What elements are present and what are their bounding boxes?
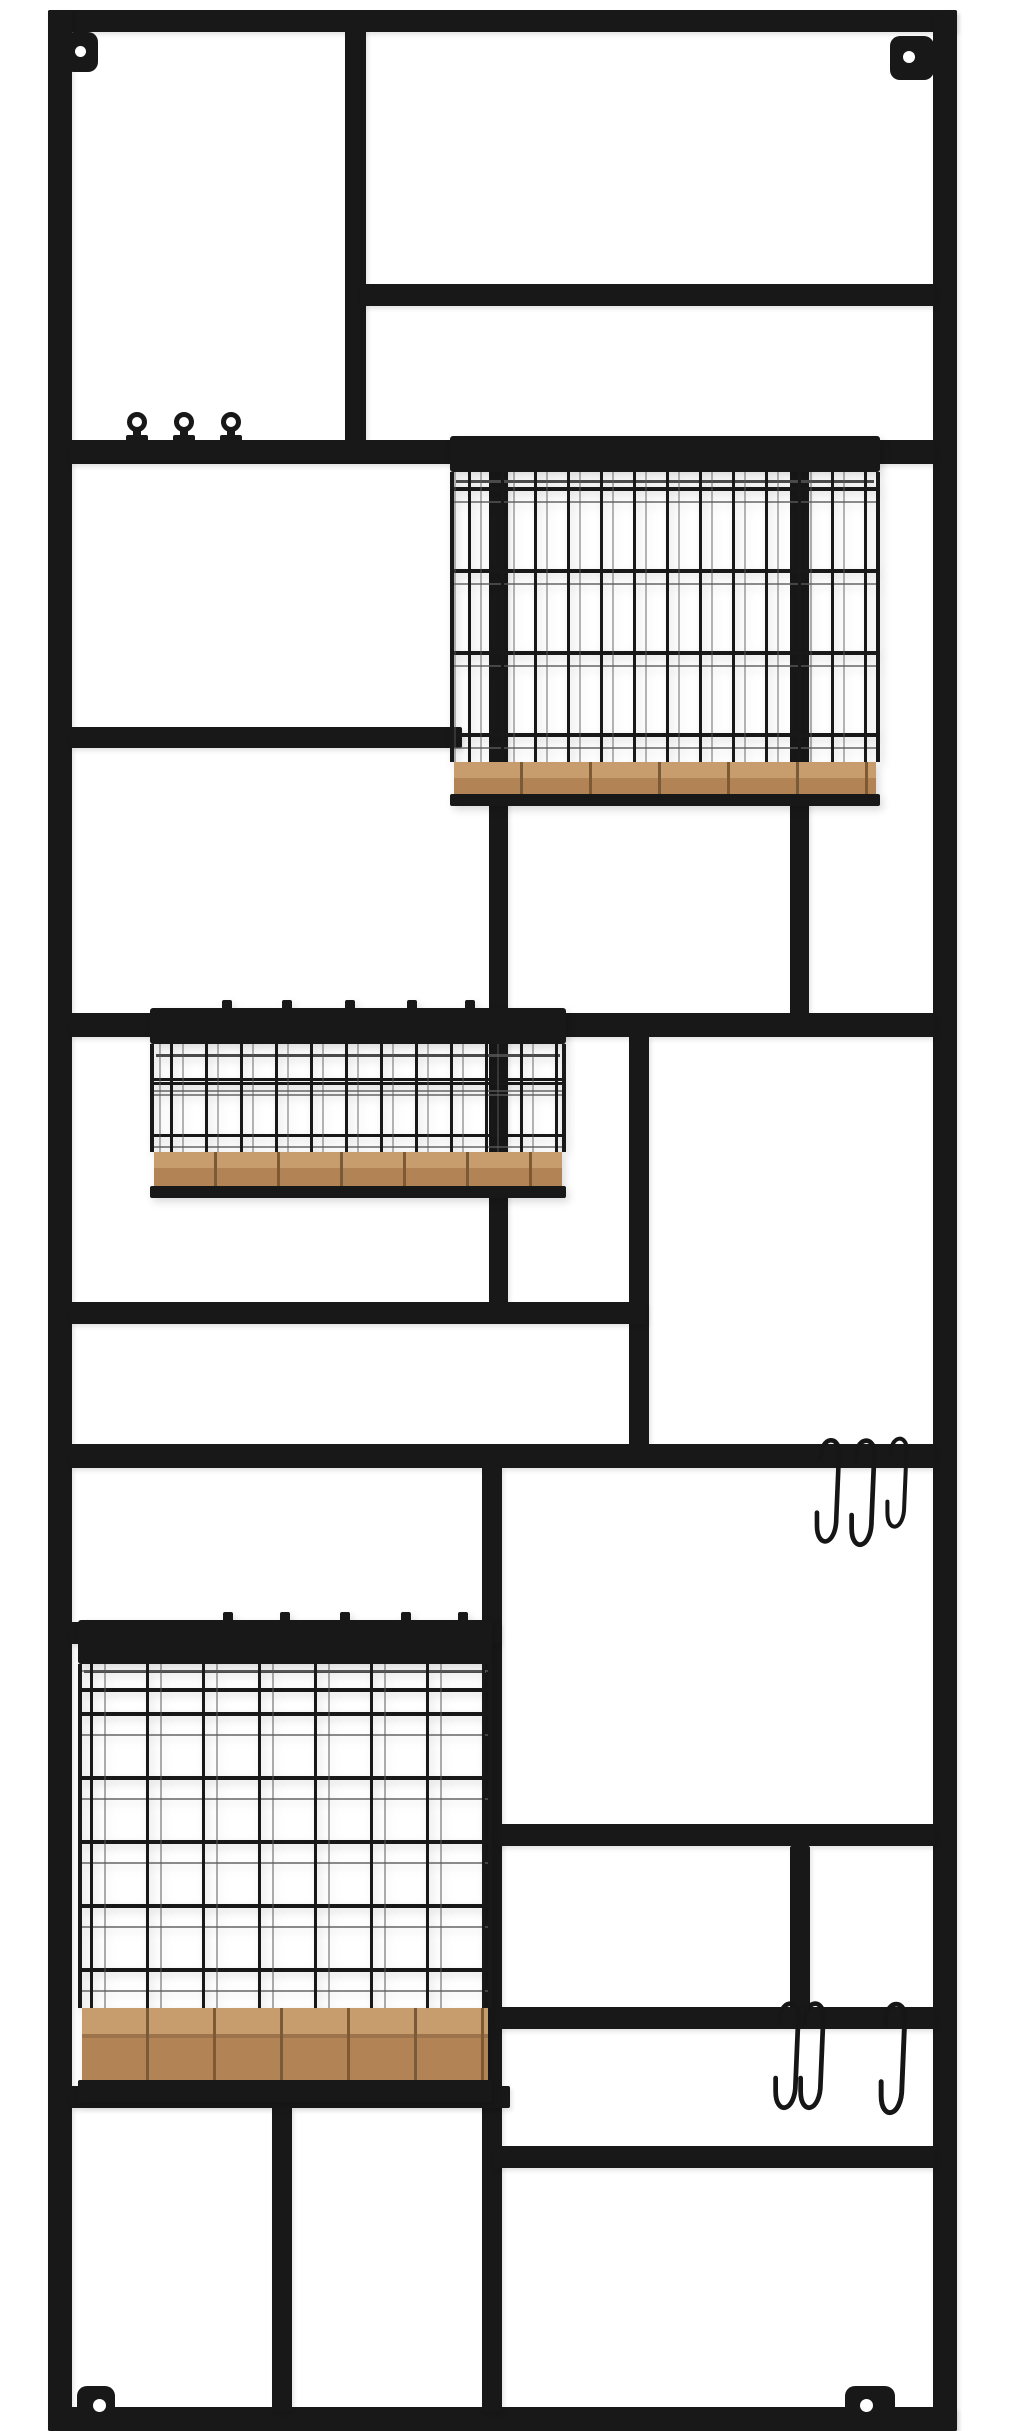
basket-wire-mesh <box>450 472 880 762</box>
divider-horizontal-topright <box>360 284 935 306</box>
knob-ring-icon <box>174 412 194 432</box>
divider-vertical-mid <box>629 1035 649 1456</box>
basket-wood-base-front <box>154 1168 562 1188</box>
divider-vertical-bottom-left <box>272 2106 292 2411</box>
divider-vertical-top <box>345 28 366 452</box>
frame-rail-bottom <box>48 2407 957 2431</box>
s-hook-icon <box>843 1428 883 1570</box>
s-hook-icon <box>791 1991 833 2133</box>
divider-horizontal-left-short <box>70 727 462 748</box>
screw-hole <box>93 2399 106 2412</box>
frame-rail-top <box>48 10 957 32</box>
screw-hole <box>903 51 915 63</box>
knob-base <box>173 435 195 442</box>
wire-basket-middle-left <box>150 1008 566 1200</box>
frame-rail-left <box>48 10 72 2431</box>
basket-bottom-rail <box>150 1186 566 1198</box>
divider-vertical-right-small <box>790 1846 810 2011</box>
product-photo-wall-rack <box>0 0 1024 2431</box>
divider-horizontal-shook-row <box>70 1444 935 1468</box>
s-hook-icon <box>878 1428 916 1548</box>
screw-hole <box>75 46 86 57</box>
basket-top-rail <box>150 1008 566 1044</box>
mount-tab-bottom-left <box>77 2386 115 2426</box>
basket-wood-base-top <box>154 1152 562 1168</box>
basket-bottom-rail <box>78 2080 492 2102</box>
divider-horizontal-right-3 <box>494 2146 935 2168</box>
divider-horizontal-right-1 <box>494 1824 935 1846</box>
knob-ring-icon <box>127 412 147 432</box>
s-hook-icon <box>872 1991 914 2139</box>
knob-base <box>126 435 148 442</box>
divider-horizontal-right-2 <box>494 2007 935 2029</box>
basket-wire-mesh <box>150 1044 566 1152</box>
wire-basket-bottom-left <box>78 1620 492 2106</box>
wire-basket-top-right <box>450 436 880 806</box>
knob-hook-2 <box>171 412 197 442</box>
frame-rail-right <box>933 10 957 2431</box>
mount-tab-top-right <box>890 36 934 80</box>
basket-wire-mesh <box>78 1664 492 2008</box>
s-hook-icon <box>808 1428 848 1566</box>
knob-hook-1 <box>124 412 150 442</box>
mount-tab-bottom-right <box>845 2386 895 2426</box>
basket-wood-base-top <box>82 2008 488 2034</box>
screw-hole <box>860 2399 873 2412</box>
mount-tab-top-left <box>64 32 98 72</box>
knob-hook-3 <box>218 412 244 442</box>
knob-ring-icon <box>221 412 241 432</box>
basket-top-rail <box>450 436 880 472</box>
basket-wood-base-top <box>454 762 876 778</box>
divider-horizontal-left-mid <box>70 1302 647 1324</box>
basket-top-rail <box>78 1620 492 1664</box>
basket-bottom-rail <box>450 794 880 806</box>
basket-wood-base-front <box>82 2034 488 2082</box>
knob-base <box>220 435 242 442</box>
